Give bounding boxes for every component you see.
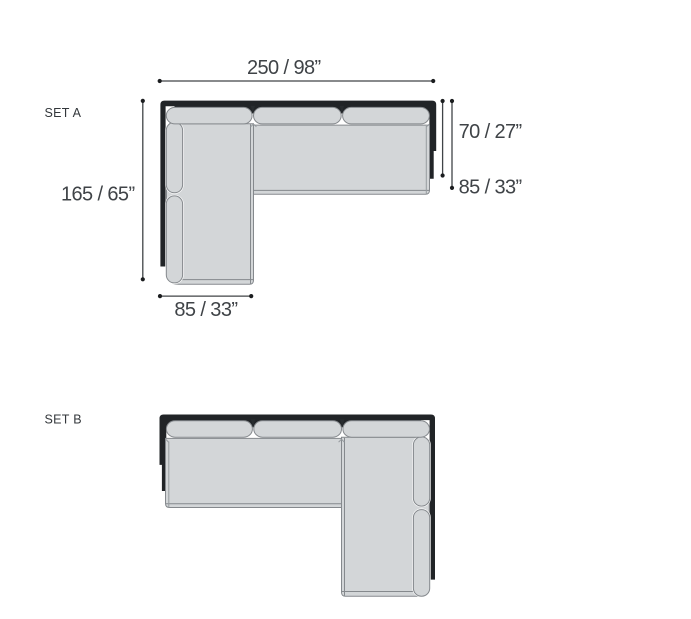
svg-text:85 / 33”: 85 / 33” bbox=[459, 176, 522, 198]
svg-text:SET A: SET A bbox=[45, 106, 82, 120]
svg-text:250 / 98”: 250 / 98” bbox=[247, 57, 321, 79]
svg-text:70 / 27”: 70 / 27” bbox=[459, 121, 522, 143]
svg-text:165 / 65”: 165 / 65” bbox=[61, 183, 135, 205]
svg-text:SET B: SET B bbox=[45, 413, 82, 427]
svg-text:85 / 33”: 85 / 33” bbox=[174, 299, 237, 321]
